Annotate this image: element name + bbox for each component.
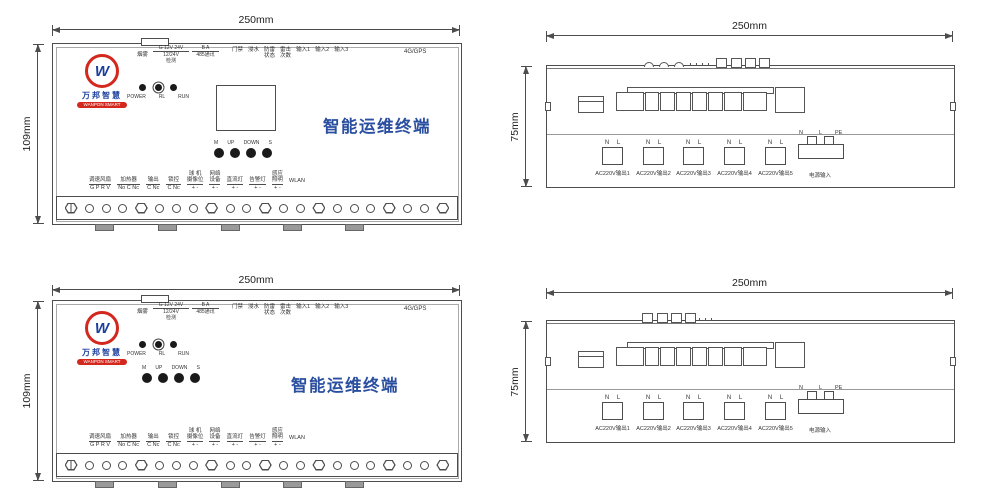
io-group: 加热器No C Nc bbox=[117, 434, 140, 449]
terminal-blocks bbox=[616, 92, 767, 111]
output-pins-label: N L bbox=[755, 140, 796, 146]
keypad: MUPDOWNS bbox=[214, 140, 272, 158]
key-label: S bbox=[197, 365, 200, 371]
ac-output-5: N LAC220V输出5 bbox=[755, 140, 796, 177]
cable-gland-hex-icon bbox=[135, 460, 148, 471]
power-input-socket bbox=[798, 399, 844, 414]
cable-hole-icon bbox=[172, 461, 181, 470]
antenna-port bbox=[685, 313, 696, 323]
power-input-label: 电源输入 bbox=[797, 171, 843, 179]
status-label: 输入1 bbox=[296, 47, 310, 53]
key-buttons bbox=[142, 373, 200, 383]
output-label: AC220V输出5 bbox=[755, 424, 796, 432]
dim-arrow-right-icon bbox=[452, 27, 460, 33]
cable-hole-icon bbox=[118, 461, 127, 470]
key-up-button[interactable] bbox=[158, 373, 168, 383]
module-large bbox=[775, 342, 805, 368]
cable-hole-icon bbox=[226, 461, 235, 470]
status-label: 输入2 bbox=[315, 47, 329, 53]
cable-hole-icon bbox=[279, 204, 288, 213]
io-terminals: + - bbox=[227, 441, 244, 449]
io-terminals: + - bbox=[187, 184, 204, 192]
led-indicators bbox=[139, 341, 177, 348]
cable-gland-hex-icon bbox=[312, 460, 325, 471]
key-label: DOWN bbox=[244, 140, 260, 146]
dim-height-label: 109mm bbox=[21, 370, 33, 411]
dim-arrow-up-icon bbox=[523, 321, 529, 329]
io-terminal-labels: 调速风扇G P R V加热器No C Nc输出C Nc锁控C Nc球 机摄像位+… bbox=[89, 425, 305, 449]
dim-arrow-down-icon bbox=[523, 434, 529, 442]
ac-output-1: N LAC220V输出1 bbox=[592, 395, 633, 432]
cable-hole-icon bbox=[102, 204, 111, 213]
cable-hole-icon bbox=[279, 461, 288, 470]
cable-hole-icon bbox=[118, 204, 127, 213]
cable-hole-icon bbox=[403, 461, 412, 470]
io-terminals: C Nc bbox=[166, 441, 180, 449]
antenna-port bbox=[657, 313, 668, 323]
mounting-tab bbox=[95, 224, 114, 231]
power-detect-label: G 12V 24V 12/24V 检测 bbox=[153, 302, 189, 321]
module-small bbox=[578, 351, 604, 368]
key-label: M bbox=[142, 365, 146, 371]
cable-gland-hex-icon bbox=[436, 203, 449, 214]
key-up-button[interactable] bbox=[230, 148, 240, 158]
output-pins-label: N L bbox=[673, 140, 714, 146]
rear-view-1: 250mm 75mm bbox=[546, 65, 955, 188]
output-socket bbox=[602, 147, 623, 165]
dim-arrow-left-icon bbox=[546, 290, 554, 296]
status-label: 输入1 bbox=[296, 304, 310, 310]
rear-view-2: 250mm 75mm N LAC220V输出1N bbox=[546, 320, 955, 443]
ac-output-4: N LAC220V输出4 bbox=[714, 395, 755, 432]
key-label: S bbox=[269, 140, 272, 146]
io-group: 输出C Nc bbox=[146, 434, 160, 449]
terminal-block bbox=[743, 92, 767, 111]
io-group: 感应照明+ - bbox=[272, 428, 283, 449]
rs485-label: B A 485通讯 bbox=[192, 45, 219, 58]
status-label: 防雷状态 bbox=[264, 47, 275, 59]
ac-output-1: N LAC220V输出1 bbox=[592, 140, 633, 177]
width-dimension: 250mm bbox=[546, 292, 953, 293]
io-group: 球 机摄像位+ - bbox=[187, 171, 204, 192]
edge-notch bbox=[950, 102, 956, 111]
dim-arrow-up-icon bbox=[523, 66, 529, 74]
ac-output-3: N LAC220V输出3 bbox=[673, 140, 714, 177]
antenna-port bbox=[642, 313, 653, 323]
dim-arrow-left-icon bbox=[546, 33, 554, 39]
io-group: 直流灯+ - bbox=[227, 434, 244, 449]
cable-gland-hex-icon bbox=[259, 460, 272, 471]
antenna-port bbox=[731, 58, 742, 68]
section-divider bbox=[547, 134, 954, 135]
front-view-1: 250mm 109mm W 万邦智慧 WANPON SMART 烟雾 G 12V… bbox=[52, 43, 462, 225]
output-pins-label: N L bbox=[755, 395, 796, 401]
key-m-button[interactable] bbox=[142, 373, 152, 383]
cable-gland-hex-icon bbox=[383, 203, 396, 214]
logo-cn-text: 万邦智慧 bbox=[73, 90, 131, 101]
io-group: 锁控C Nc bbox=[166, 177, 180, 192]
key-down-button[interactable] bbox=[246, 148, 256, 158]
status-label: 输入3 bbox=[334, 47, 348, 53]
edge-tick bbox=[690, 63, 691, 66]
pin-pe-label: PE bbox=[835, 385, 842, 391]
edge-notch bbox=[545, 357, 551, 366]
led-indicators bbox=[139, 84, 177, 91]
output-label: AC220V输出1 bbox=[592, 169, 633, 177]
cable-hole-icon bbox=[420, 461, 429, 470]
terminal-blocks bbox=[616, 347, 767, 366]
io-terminals: + - bbox=[209, 184, 220, 192]
key-s-button[interactable] bbox=[190, 373, 200, 383]
top-edge-line bbox=[547, 323, 954, 324]
terminal-block bbox=[660, 92, 675, 111]
height-dimension: 75mm bbox=[525, 321, 526, 442]
io-terminals: G P R V bbox=[89, 184, 111, 192]
status-label: 防雷状态 bbox=[264, 304, 275, 316]
terminal-block bbox=[645, 92, 659, 111]
key-labels: MUPDOWNS bbox=[214, 140, 272, 146]
cable-hole-icon bbox=[350, 204, 359, 213]
dim-arrow-right-icon bbox=[945, 33, 953, 39]
height-dimension: 109mm bbox=[37, 44, 38, 224]
cable-hole-icon bbox=[102, 461, 111, 470]
io-group: 直流灯+ - bbox=[227, 177, 244, 192]
terminal-block bbox=[708, 347, 723, 366]
led-label: POWER bbox=[127, 94, 146, 100]
smoke-label: 烟雾 bbox=[137, 50, 148, 58]
ac-output-2: N LAC220V输出2 bbox=[633, 395, 674, 432]
terminal-block bbox=[692, 347, 707, 366]
led-label: POWER bbox=[127, 351, 146, 357]
cable-hole-icon bbox=[296, 461, 305, 470]
mounting-tab bbox=[95, 481, 114, 488]
io-group: 感应照明+ - bbox=[272, 171, 283, 192]
dim-arrow-down-icon bbox=[35, 216, 41, 224]
led-labels: POWERRLRUN bbox=[127, 94, 189, 100]
io-terminal-labels: 调速风扇G P R V加热器No C Nc输出C Nc锁控C Nc球 机摄像位+… bbox=[89, 168, 305, 192]
output-label: AC220V输出5 bbox=[755, 169, 796, 177]
dim-height-label: 75mm bbox=[509, 109, 521, 144]
knockout-bump bbox=[674, 62, 684, 67]
terminal-block bbox=[676, 92, 691, 111]
pin-l-label: L bbox=[819, 385, 822, 391]
dim-arrow-left-icon bbox=[52, 287, 60, 293]
output-pins-label: N L bbox=[673, 395, 714, 401]
power-input-socket bbox=[798, 144, 844, 159]
width-dimension: 250mm bbox=[52, 289, 460, 290]
dim-arrow-up-icon bbox=[35, 301, 41, 309]
keypad: MUPDOWNS bbox=[142, 365, 200, 383]
key-label: M bbox=[214, 140, 218, 146]
pin-l-label: L bbox=[819, 130, 822, 136]
cable-hole-icon bbox=[242, 461, 251, 470]
cable-hole-icon bbox=[333, 461, 342, 470]
ac-output-3: N LAC220V输出3 bbox=[673, 395, 714, 432]
power-detect-label: G 12V 24V 12/24V 检测 bbox=[153, 45, 189, 64]
output-label: AC220V输出4 bbox=[714, 169, 755, 177]
product-title: 智能运维终端 bbox=[323, 113, 431, 137]
mounting-tab bbox=[283, 481, 302, 488]
module-small bbox=[578, 96, 604, 113]
antenna-port bbox=[671, 313, 682, 323]
io-terminals: + - bbox=[187, 441, 204, 449]
key-label: UP bbox=[227, 140, 234, 146]
key-buttons bbox=[214, 148, 272, 158]
io-terminals: + - bbox=[249, 441, 266, 449]
io-group: 锁控C Nc bbox=[166, 434, 180, 449]
edge-tick bbox=[696, 63, 697, 66]
io-group: 球 机摄像位+ - bbox=[187, 428, 204, 449]
dim-arrow-left-icon bbox=[52, 27, 60, 33]
terminal-block bbox=[724, 347, 742, 366]
mounting-tab bbox=[158, 481, 177, 488]
io-terminals: + - bbox=[249, 184, 266, 192]
antenna-port bbox=[745, 58, 756, 68]
key-label: UP bbox=[155, 365, 162, 371]
gps-label: 4G/GPS bbox=[404, 49, 426, 55]
key-s-button[interactable] bbox=[262, 148, 272, 158]
terminal-block bbox=[616, 347, 644, 366]
ac-output-2: N LAC220V输出2 bbox=[633, 140, 674, 177]
height-dimension: 75mm bbox=[525, 66, 526, 187]
dim-arrow-right-icon bbox=[452, 287, 460, 293]
output-pins-label: N L bbox=[714, 395, 755, 401]
output-pins-label: N L bbox=[592, 395, 633, 401]
power-input-label: 电源输入 bbox=[797, 426, 843, 434]
technical-drawing: 250mm 109mm W 万邦智慧 WANPON SMART 烟雾 G 12V… bbox=[0, 0, 981, 504]
output-label: AC220V输出1 bbox=[592, 424, 633, 432]
width-dimension: 250mm bbox=[546, 35, 953, 36]
mounting-tab bbox=[345, 481, 364, 488]
cable-hole-icon bbox=[333, 204, 342, 213]
edge-tick bbox=[699, 318, 700, 321]
mounting-tab bbox=[283, 224, 302, 231]
terminal-block bbox=[724, 92, 742, 111]
output-label: AC220V输出3 bbox=[673, 424, 714, 432]
status-label: 输入2 bbox=[315, 304, 329, 310]
edge-notch bbox=[950, 357, 956, 366]
output-pins-label: N L bbox=[714, 140, 755, 146]
edge-notch bbox=[545, 102, 551, 111]
output-socket bbox=[724, 402, 745, 420]
led-label: RUN bbox=[178, 94, 189, 100]
antenna-port bbox=[759, 58, 770, 68]
io-terminals: + - bbox=[272, 441, 283, 449]
io-terminals: No C Nc bbox=[117, 441, 140, 449]
knockout-bump bbox=[644, 62, 654, 67]
antenna-port bbox=[716, 58, 727, 68]
io-group: 告警灯+ - bbox=[249, 434, 266, 449]
dim-arrow-down-icon bbox=[35, 473, 41, 481]
led-label: RUN bbox=[178, 351, 189, 357]
terminal-block bbox=[676, 347, 691, 366]
io-group: 调速风扇G P R V bbox=[89, 434, 111, 449]
pin-n-label: N bbox=[799, 130, 803, 136]
io-terminals: C Nc bbox=[146, 441, 160, 449]
status-label: 门禁 bbox=[232, 304, 243, 310]
output-label: AC220V输出4 bbox=[714, 424, 755, 432]
logo-en-text: WANPON SMART bbox=[77, 359, 127, 365]
knockout-bump bbox=[659, 62, 669, 67]
dim-width-label: 250mm bbox=[234, 14, 277, 26]
status-indicator-labels: 门禁浸水防雷状态雷击次数输入1输入2输入3 bbox=[232, 304, 348, 316]
cable-gland-strip bbox=[56, 453, 458, 477]
cable-gland-hex-icon bbox=[259, 203, 272, 214]
terminal-block bbox=[616, 92, 644, 111]
cable-hole-icon bbox=[189, 204, 198, 213]
output-pins-label: N L bbox=[633, 140, 674, 146]
terminal-block bbox=[645, 347, 659, 366]
output-socket bbox=[602, 402, 623, 420]
output-label: AC220V输出2 bbox=[633, 424, 674, 432]
cable-gland-hex-icon bbox=[135, 203, 148, 214]
key-label: DOWN bbox=[172, 365, 188, 371]
mounting-tab bbox=[158, 224, 177, 231]
cable-hole-icon bbox=[403, 204, 412, 213]
status-label: 门禁 bbox=[232, 47, 243, 53]
rl-led-icon bbox=[155, 84, 162, 91]
cable-hole-icon bbox=[350, 461, 359, 470]
led-labels: POWERRLRUN bbox=[127, 351, 189, 357]
io-group: 调速风扇G P R V bbox=[89, 177, 111, 192]
output-socket bbox=[765, 402, 786, 420]
status-label: 浸水 bbox=[248, 304, 259, 310]
gps-label: 4G/GPS bbox=[404, 306, 426, 312]
status-label: 输入3 bbox=[334, 304, 348, 310]
io-group: WLAN bbox=[289, 178, 305, 184]
brand-logo: W 万邦智慧 WANPON SMART bbox=[73, 54, 131, 108]
cable-hole-icon bbox=[155, 461, 164, 470]
cable-hole-icon bbox=[366, 204, 375, 213]
io-terminals: C Nc bbox=[146, 184, 160, 192]
logo-monogram: W bbox=[88, 57, 116, 85]
dim-width-label: 250mm bbox=[234, 274, 277, 286]
io-group: 网络设备+ - bbox=[209, 171, 220, 192]
cable-hole-icon bbox=[242, 204, 251, 213]
ac-output-5: N LAC220V输出5 bbox=[755, 395, 796, 432]
output-pins-label: N L bbox=[592, 140, 633, 146]
smoke-label: 烟雾 bbox=[137, 307, 148, 315]
logo-en-text: WANPON SMART bbox=[77, 102, 127, 108]
output-socket bbox=[643, 402, 664, 420]
width-dimension: 250mm bbox=[52, 29, 460, 30]
cable-hole-icon bbox=[85, 461, 94, 470]
power-led-icon bbox=[139, 84, 146, 91]
cable-hole-icon bbox=[85, 204, 94, 213]
section-divider bbox=[547, 389, 954, 390]
output-socket bbox=[765, 147, 786, 165]
cable-gland-slot-icon bbox=[65, 460, 78, 471]
lcd-display bbox=[216, 85, 276, 131]
cable-gland-slot-icon bbox=[65, 203, 78, 214]
cable-gland-hex-icon bbox=[383, 460, 396, 471]
output-socket bbox=[683, 402, 704, 420]
cable-hole-icon bbox=[420, 204, 429, 213]
logo-monogram: W bbox=[88, 314, 116, 342]
brand-logo: W 万邦智慧 WANPON SMART bbox=[73, 311, 131, 365]
io-terminals: + - bbox=[227, 184, 244, 192]
cable-hole-icon bbox=[366, 461, 375, 470]
io-terminals: + - bbox=[272, 184, 283, 192]
dim-arrow-down-icon bbox=[523, 179, 529, 187]
mounting-tab bbox=[221, 481, 240, 488]
output-pins-label: N L bbox=[633, 395, 674, 401]
cable-hole-icon bbox=[189, 461, 198, 470]
status-label: 雷击次数 bbox=[280, 304, 291, 316]
ac-output-4: N LAC220V输出4 bbox=[714, 140, 755, 177]
rs485-label: B A 485通讯 bbox=[192, 302, 219, 315]
output-socket bbox=[643, 147, 664, 165]
status-label: 雷击次数 bbox=[280, 47, 291, 59]
io-terminals: No C Nc bbox=[117, 184, 140, 192]
logo-cn-text: 万邦智慧 bbox=[73, 347, 131, 358]
edge-tick bbox=[705, 318, 706, 321]
status-label: 浸水 bbox=[248, 47, 259, 53]
io-terminals: G P R V bbox=[89, 441, 111, 449]
cable-gland-hex-icon bbox=[205, 203, 218, 214]
cable-gland-hex-icon bbox=[436, 460, 449, 471]
terminal-block bbox=[743, 347, 767, 366]
dim-width-label: 250mm bbox=[728, 277, 771, 289]
io-terminals: + - bbox=[209, 441, 220, 449]
io-group: 加热器No C Nc bbox=[117, 177, 140, 192]
led-label: RL bbox=[159, 351, 165, 357]
terminal-block bbox=[660, 347, 675, 366]
dim-arrow-up-icon bbox=[35, 44, 41, 52]
dim-height-label: 75mm bbox=[509, 364, 521, 399]
height-dimension: 109mm bbox=[37, 301, 38, 481]
terminal-block bbox=[692, 92, 707, 111]
cable-hole-icon bbox=[226, 204, 235, 213]
output-label: AC220V输出3 bbox=[673, 169, 714, 177]
key-m-button[interactable] bbox=[214, 148, 224, 158]
cable-hole-icon bbox=[172, 204, 181, 213]
product-title: 智能运维终端 bbox=[291, 372, 399, 396]
cable-gland-hex-icon bbox=[205, 460, 218, 471]
dim-arrow-right-icon bbox=[945, 290, 953, 296]
terminal-block bbox=[708, 92, 723, 111]
dim-width-label: 250mm bbox=[728, 20, 771, 32]
rl-led-icon bbox=[155, 341, 162, 348]
pin-n-label: N bbox=[799, 385, 803, 391]
io-terminals: C Nc bbox=[166, 184, 180, 192]
logo-emblem-icon: W bbox=[85, 54, 119, 88]
dim-height-label: 109mm bbox=[21, 113, 33, 154]
run-led-icon bbox=[170, 341, 177, 348]
key-down-button[interactable] bbox=[174, 373, 184, 383]
cable-gland-hex-icon bbox=[312, 203, 325, 214]
run-led-icon bbox=[170, 84, 177, 91]
status-indicator-labels: 门禁浸水防雷状态雷击次数输入1输入2输入3 bbox=[232, 47, 348, 59]
front-view-2: 250mm 109mm W 万邦智慧 WANPON SMART 烟雾 G 12V… bbox=[52, 300, 462, 482]
io-group: 网络设备+ - bbox=[209, 428, 220, 449]
mounting-tab bbox=[345, 224, 364, 231]
cable-gland-strip bbox=[56, 196, 458, 220]
led-label: RL bbox=[159, 94, 165, 100]
edge-tick bbox=[711, 318, 712, 321]
edge-tick bbox=[702, 63, 703, 66]
io-group: 输出C Nc bbox=[146, 177, 160, 192]
output-label: AC220V输出2 bbox=[633, 169, 674, 177]
io-group: 告警灯+ - bbox=[249, 177, 266, 192]
cable-hole-icon bbox=[296, 204, 305, 213]
output-socket bbox=[724, 147, 745, 165]
cable-hole-icon bbox=[155, 204, 164, 213]
output-socket bbox=[683, 147, 704, 165]
module-large bbox=[775, 87, 805, 113]
edge-tick bbox=[708, 63, 709, 66]
logo-emblem-icon: W bbox=[85, 311, 119, 345]
